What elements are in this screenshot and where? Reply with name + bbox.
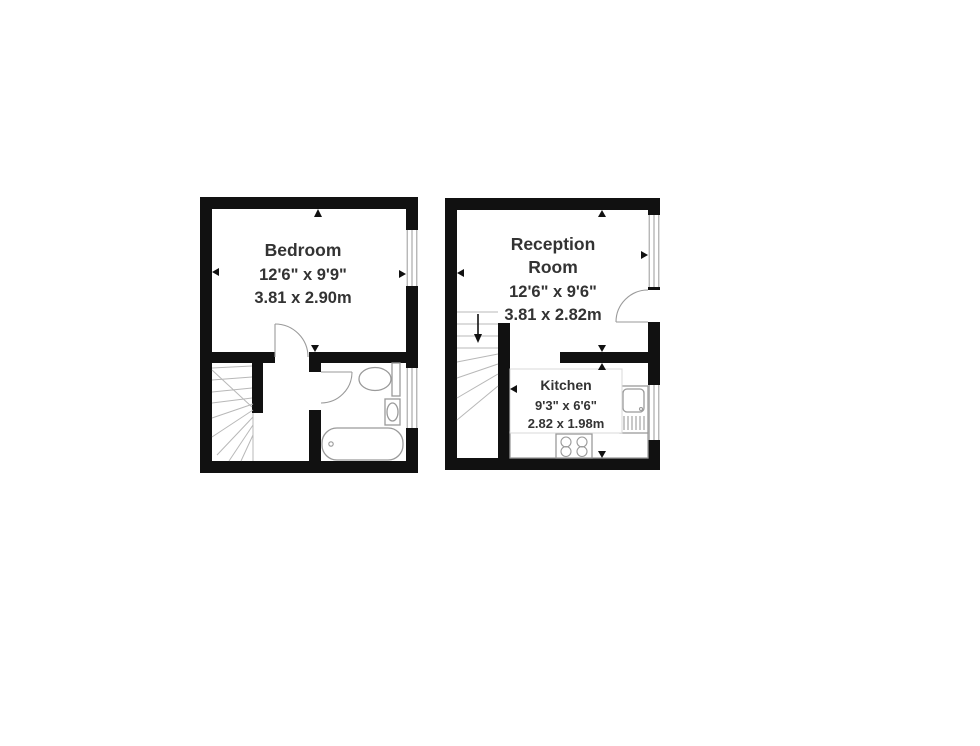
floorplan-image: Bedroom 12'6" x 9'9" 3.81 x 2.90m bbox=[0, 0, 980, 746]
door-swing bbox=[616, 290, 660, 322]
dimension-arrow bbox=[399, 270, 406, 278]
bedroom-label: Bedroom bbox=[265, 240, 342, 260]
interior-wall bbox=[252, 363, 263, 413]
interior-wall bbox=[498, 323, 510, 458]
dimension-arrow bbox=[641, 251, 648, 259]
dimension-arrow bbox=[598, 363, 606, 370]
kitchen-size-metric: 2.82 x 1.98m bbox=[528, 416, 605, 431]
reception-size-imperial: 12'6" x 9'6" bbox=[509, 283, 597, 301]
kitchen-label: Kitchen bbox=[540, 377, 591, 393]
dimension-arrow bbox=[314, 209, 322, 217]
stairs-direction-arrow bbox=[474, 314, 482, 343]
window bbox=[648, 215, 660, 287]
dimension-arrow bbox=[598, 345, 606, 352]
kitchen-sink-icon bbox=[620, 386, 648, 433]
interior-wall bbox=[309, 363, 321, 372]
window bbox=[648, 385, 660, 440]
door-swing bbox=[321, 372, 352, 403]
upper-floor-plan: Bedroom 12'6" x 9'9" 3.81 x 2.90m bbox=[200, 197, 418, 473]
basin-icon bbox=[385, 399, 400, 425]
reception-label-line1: Reception bbox=[511, 234, 596, 254]
reception-size-metric: 3.81 x 2.82m bbox=[504, 306, 601, 324]
door-swing bbox=[275, 324, 308, 357]
dimension-arrow bbox=[311, 345, 319, 352]
interior-wall bbox=[212, 352, 275, 363]
dimension-arrow bbox=[598, 210, 606, 217]
reception-label-line2: Room bbox=[528, 257, 578, 277]
hob-icon bbox=[556, 434, 592, 458]
kitchen-size-imperial: 9'3" x 6'6" bbox=[535, 398, 597, 413]
bedroom-size-metric: 3.81 x 2.90m bbox=[254, 289, 351, 307]
window bbox=[406, 230, 418, 286]
window bbox=[406, 368, 418, 428]
interior-wall bbox=[560, 352, 648, 363]
dimension-arrow bbox=[457, 269, 464, 277]
dimension-arrow bbox=[212, 268, 219, 276]
floorplan-page: Bedroom 12'6" x 9'9" 3.81 x 2.90m bbox=[0, 0, 980, 746]
interior-wall bbox=[309, 352, 406, 363]
toilet-icon bbox=[359, 363, 400, 396]
interior-wall bbox=[309, 410, 321, 461]
bedroom-size-imperial: 12'6" x 9'9" bbox=[259, 266, 347, 284]
bathtub-icon bbox=[322, 428, 403, 460]
ground-floor-plan: Reception Room 12'6" x 9'6" 3.81 x 2.82m… bbox=[445, 198, 660, 470]
staircase bbox=[212, 366, 253, 461]
